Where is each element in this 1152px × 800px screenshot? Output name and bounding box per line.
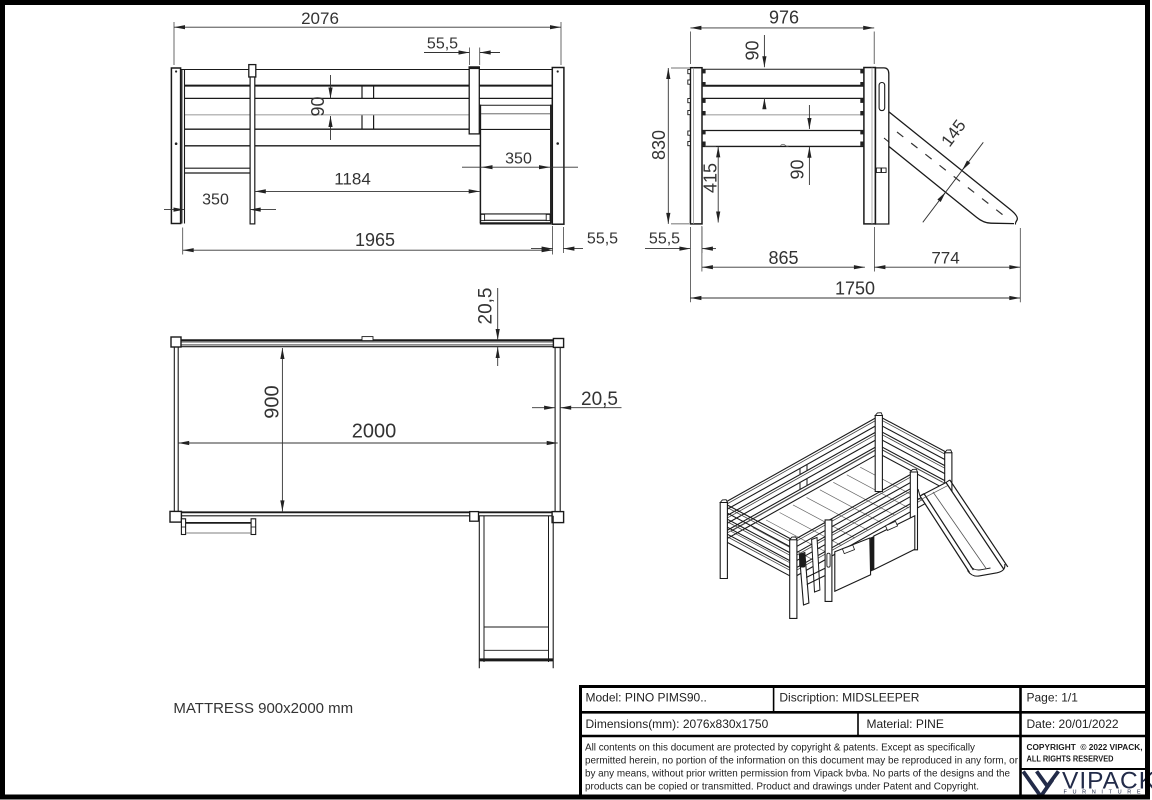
svg-text:976: 976 bbox=[769, 8, 799, 28]
svg-text:1750: 1750 bbox=[835, 279, 875, 299]
svg-text:permitted herein, no portion o: permitted herein, no portion of the info… bbox=[585, 755, 1018, 767]
svg-text:Material: PINE: Material: PINE bbox=[867, 717, 944, 731]
svg-text:830: 830 bbox=[649, 130, 669, 160]
svg-text:90: 90 bbox=[743, 40, 763, 60]
svg-text:1184: 1184 bbox=[334, 170, 371, 189]
svg-text:by any means, without prior wr: by any means, without prior written perm… bbox=[585, 768, 1010, 780]
svg-text:55,5: 55,5 bbox=[649, 231, 680, 248]
svg-text:ALL RIGHTS RESERVED: ALL RIGHTS RESERVED bbox=[1027, 753, 1114, 763]
svg-text:Date: 20/01/2022: Date: 20/01/2022 bbox=[1027, 717, 1119, 731]
svg-text:COPYRIGHT © 2022 VIPACK,: COPYRIGHT © 2022 VIPACK, bbox=[1027, 742, 1143, 752]
svg-text:20,5: 20,5 bbox=[581, 389, 618, 410]
svg-text:2076: 2076 bbox=[301, 9, 339, 28]
svg-text:MATTRESS 900x2000 mm: MATTRESS 900x2000 mm bbox=[173, 700, 353, 717]
svg-text:Page: 1/1: Page: 1/1 bbox=[1027, 690, 1079, 704]
svg-text:20,5: 20,5 bbox=[476, 288, 497, 325]
svg-text:90: 90 bbox=[788, 159, 808, 179]
svg-text:1965: 1965 bbox=[355, 230, 395, 250]
svg-text:415: 415 bbox=[701, 163, 721, 193]
svg-text:2000: 2000 bbox=[352, 421, 397, 443]
svg-text:55,5: 55,5 bbox=[587, 231, 618, 248]
svg-text:774: 774 bbox=[931, 249, 959, 268]
svg-text:Discription: MIDSLEEPER: Discription: MIDSLEEPER bbox=[779, 690, 919, 704]
svg-text:Model: PINO PIMS90..: Model: PINO PIMS90.. bbox=[586, 690, 707, 704]
svg-text:350: 350 bbox=[505, 151, 532, 168]
svg-text:Dimensions(mm): 2076x830x1750: Dimensions(mm): 2076x830x1750 bbox=[586, 717, 769, 731]
svg-text:350: 350 bbox=[202, 192, 229, 209]
svg-text:products can be copied or tran: products can be copied or transmitted. P… bbox=[585, 781, 979, 793]
svg-text:55,5: 55,5 bbox=[427, 36, 458, 53]
svg-text:865: 865 bbox=[768, 248, 798, 268]
svg-text:All contents on this document: All contents on this document are protec… bbox=[585, 742, 976, 754]
svg-text:90: 90 bbox=[308, 96, 328, 116]
svg-text:900: 900 bbox=[262, 385, 284, 418]
svg-text:145: 145 bbox=[937, 116, 969, 150]
